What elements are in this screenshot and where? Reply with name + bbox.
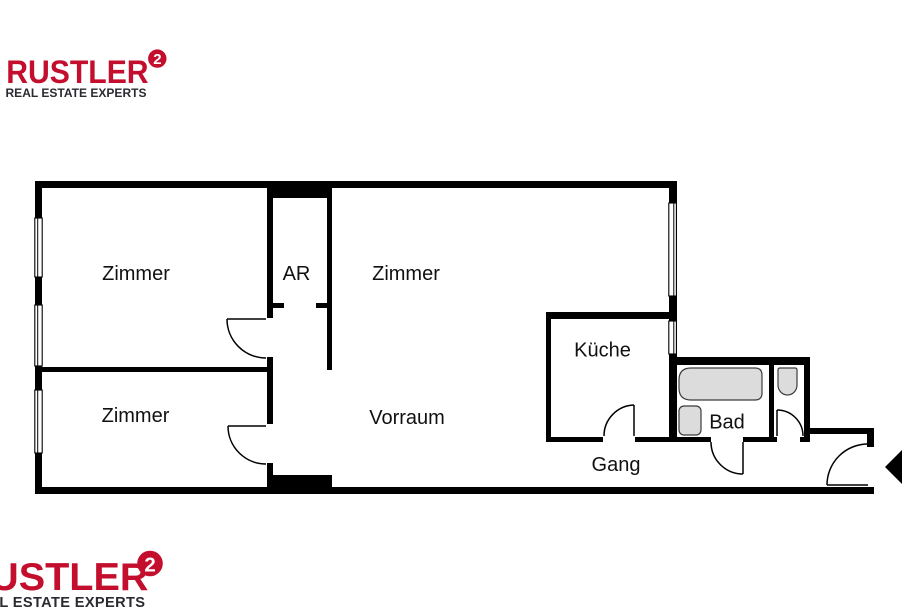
svg-text:2: 2	[144, 553, 155, 576]
svg-text:AR: AR	[283, 263, 311, 285]
svg-text:Zimmer: Zimmer	[102, 405, 170, 427]
svg-text:Zimmer: Zimmer	[102, 263, 170, 285]
svg-text:REAL ESTATE EXPERTS: REAL ESTATE EXPERTS	[6, 86, 147, 100]
svg-text:2: 2	[153, 51, 161, 68]
svg-text:Zimmer: Zimmer	[372, 263, 440, 285]
svg-text:Vorraum: Vorraum	[369, 407, 445, 429]
svg-text:RUSTLER: RUSTLER	[6, 54, 148, 90]
svg-text:Küche: Küche	[574, 340, 631, 362]
svg-text:Gang: Gang	[592, 454, 641, 476]
svg-text:Bad: Bad	[709, 412, 745, 434]
svg-text:RUSTLER: RUSTLER	[0, 556, 149, 599]
svg-text:REAL ESTATE EXPERTS: REAL ESTATE EXPERTS	[0, 595, 145, 610]
